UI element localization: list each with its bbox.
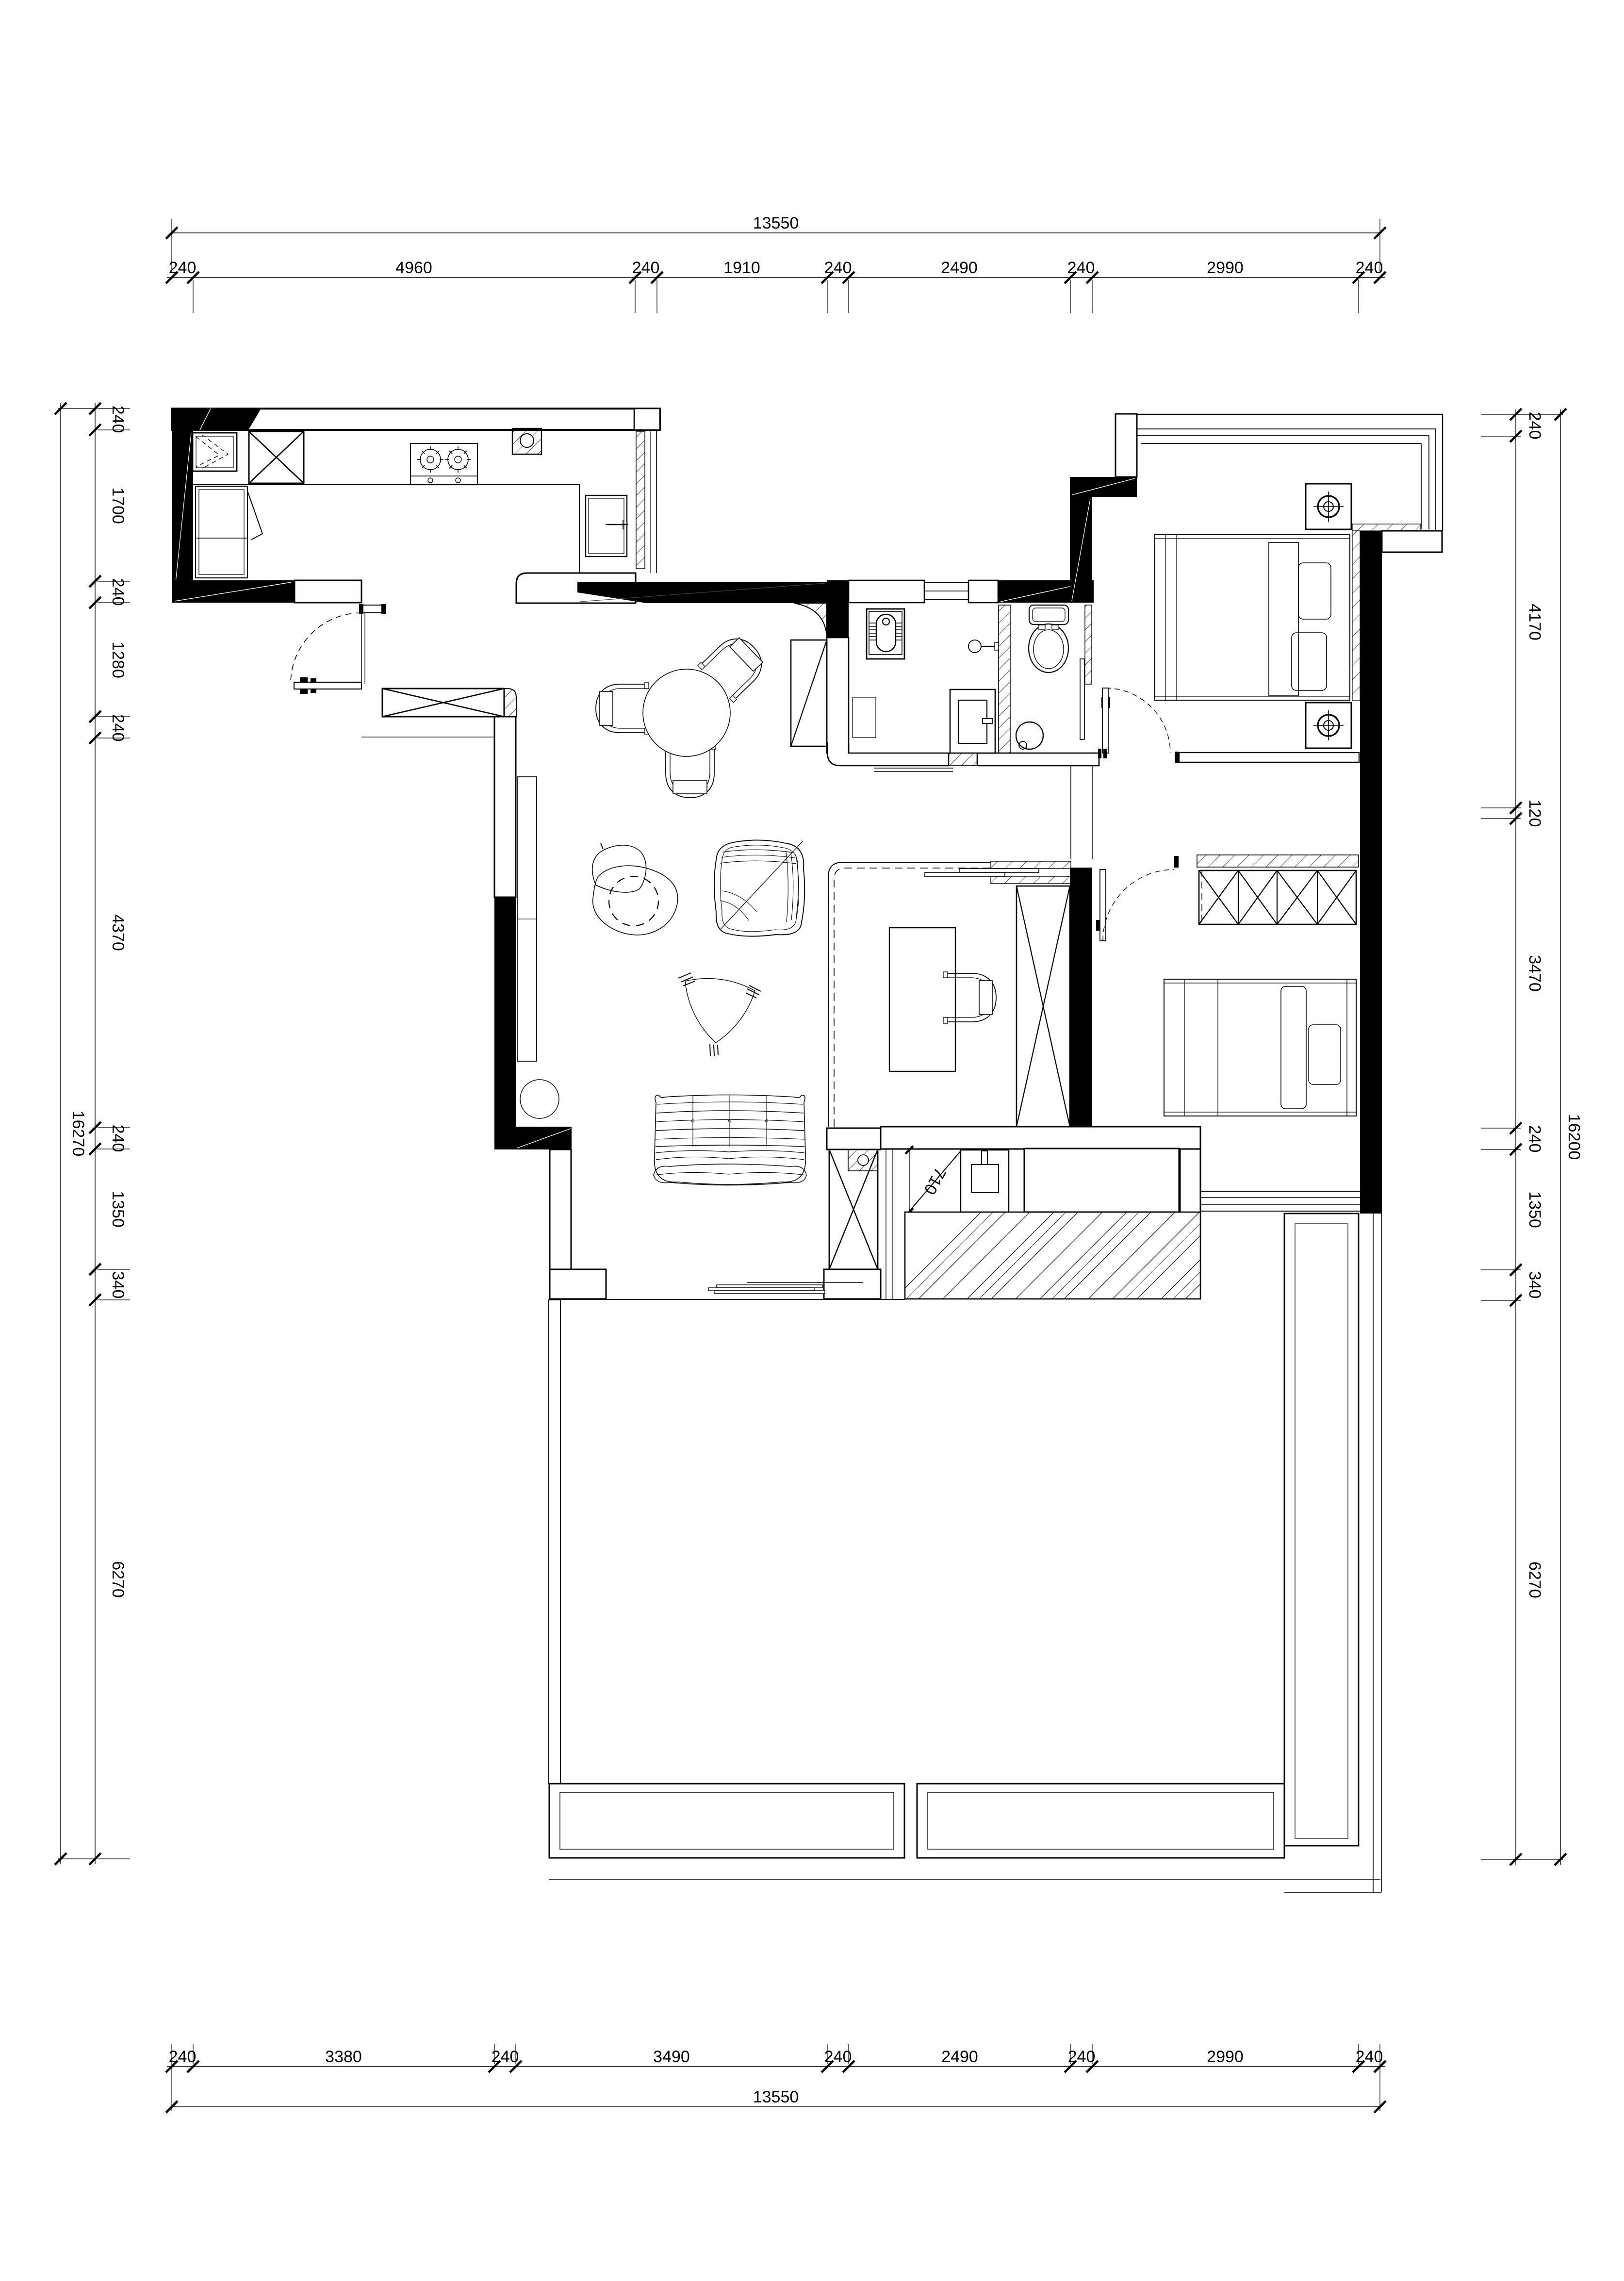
svg-text:240: 240 [632,259,660,277]
svg-text:4370: 4370 [109,914,127,951]
svg-text:1910: 1910 [723,259,760,277]
svg-text:240: 240 [1526,412,1544,440]
svg-text:240: 240 [1526,1125,1544,1153]
svg-text:240: 240 [109,406,127,433]
svg-text:240: 240 [1068,2048,1096,2066]
svg-text:240: 240 [109,1125,127,1152]
svg-text:1350: 1350 [109,1191,127,1228]
svg-text:2990: 2990 [1207,2048,1244,2066]
svg-text:4170: 4170 [1526,604,1544,640]
svg-text:16200: 16200 [1565,1114,1583,1160]
svg-text:240: 240 [169,2048,197,2066]
svg-text:3470: 3470 [1526,955,1544,992]
svg-text:4960: 4960 [395,259,432,277]
svg-text:2490: 2490 [941,259,978,277]
svg-text:6270: 6270 [109,1561,127,1598]
svg-text:240: 240 [824,2048,852,2066]
svg-text:13550: 13550 [753,214,799,232]
svg-text:2990: 2990 [1207,259,1244,277]
svg-text:6270: 6270 [1526,1561,1544,1598]
svg-text:240: 240 [109,578,127,606]
svg-text:240: 240 [824,259,852,277]
svg-text:16270: 16270 [69,1111,87,1157]
svg-text:240: 240 [169,259,197,277]
svg-text:3380: 3380 [325,2048,362,2066]
svg-text:13550: 13550 [753,2088,799,2106]
svg-text:240: 240 [492,2048,519,2066]
svg-text:240: 240 [1356,2048,1383,2066]
svg-text:240: 240 [1356,259,1383,277]
svg-text:240: 240 [109,714,127,742]
svg-text:1280: 1280 [109,641,127,678]
svg-text:1350: 1350 [1526,1191,1544,1228]
svg-text:1700: 1700 [109,487,127,524]
svg-text:120: 120 [1526,800,1544,827]
svg-text:3490: 3490 [653,2048,690,2066]
svg-text:340: 340 [1526,1271,1544,1299]
svg-text:2490: 2490 [941,2048,978,2066]
svg-text:340: 340 [109,1271,127,1299]
svg-text:240: 240 [1067,259,1095,277]
